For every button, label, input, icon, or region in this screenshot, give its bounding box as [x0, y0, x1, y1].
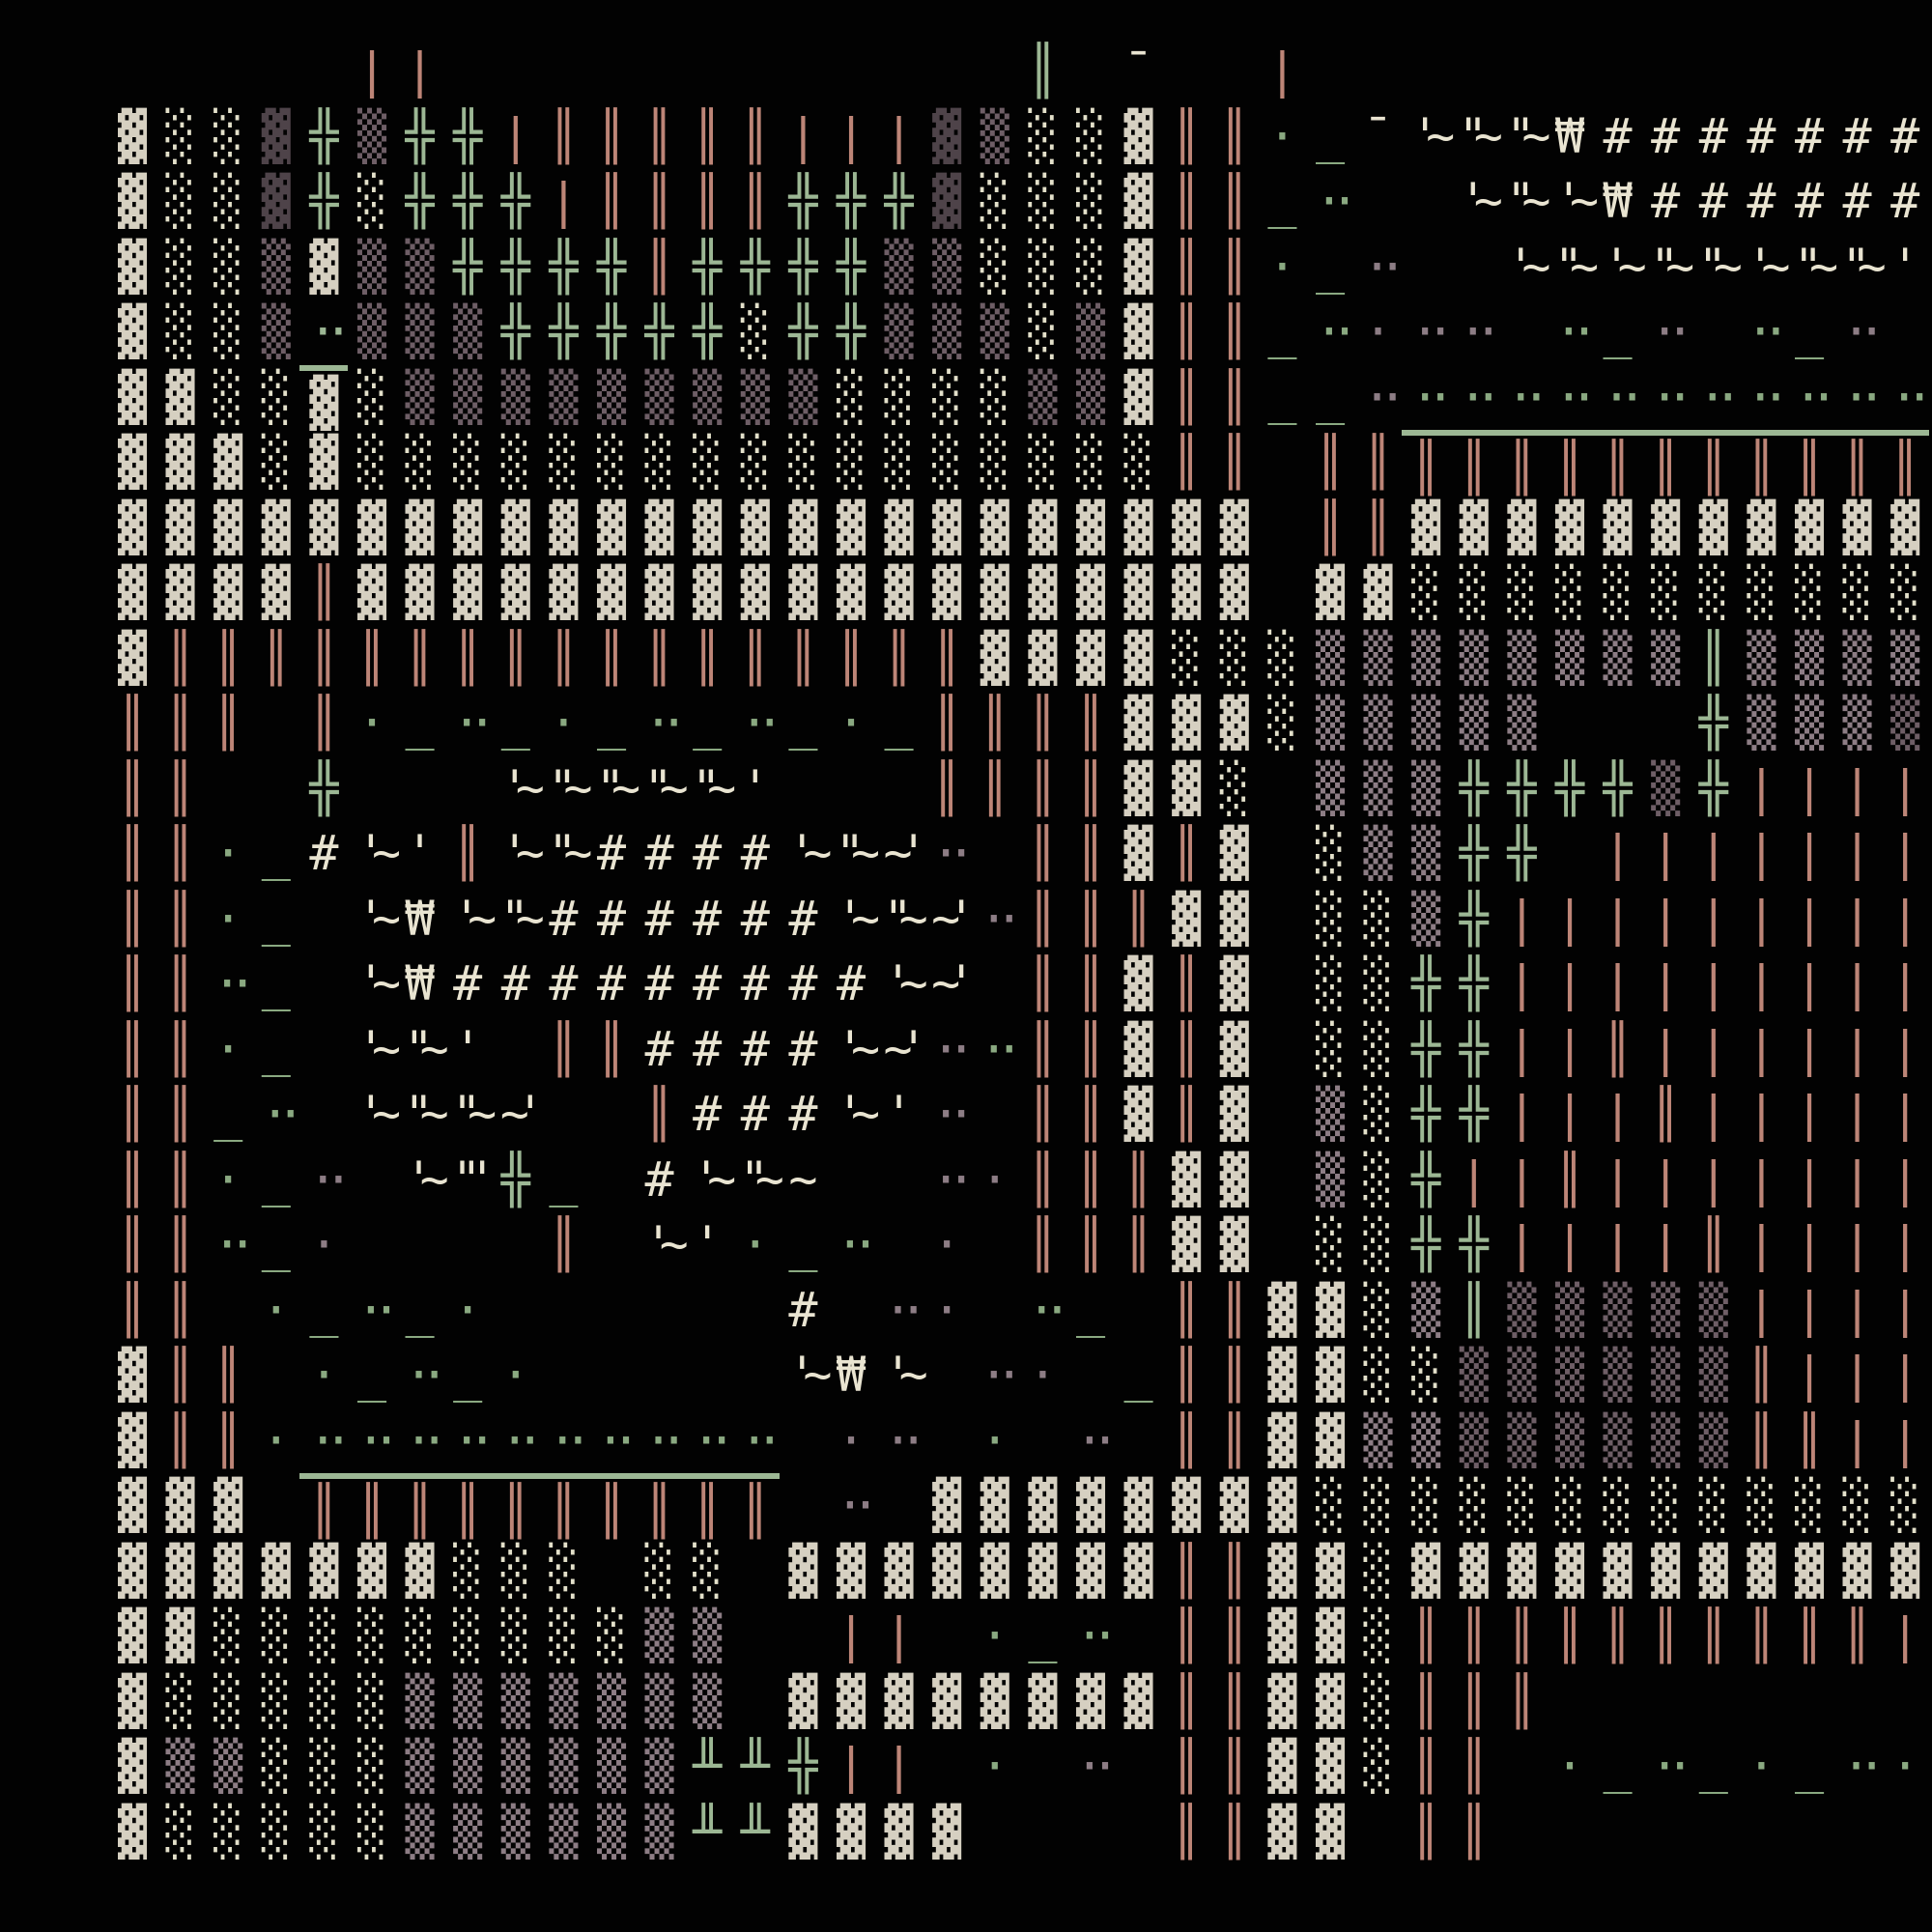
grid-cell: ▒ [1402, 821, 1450, 887]
grid-cell: ╬ [779, 1734, 827, 1800]
grid-cell: ░ [204, 104, 252, 170]
grid-cell: · [971, 1734, 1019, 1800]
grid-cell: ╬ [492, 169, 540, 235]
grid-cell: ░ [156, 235, 205, 300]
grid-cell: ║ [1162, 1082, 1210, 1148]
grid-cell: # [731, 1017, 780, 1083]
grid-cell: | [1737, 756, 1785, 822]
grid-cell: ░ [779, 430, 827, 496]
grid-cell: ▓ [1641, 1539, 1690, 1605]
grid-cell: ▒ [779, 365, 827, 431]
grid-cell: | [827, 1604, 875, 1669]
grid-cell: ▓ [875, 1669, 923, 1735]
grid-cell: | [1737, 887, 1785, 952]
grid-cell: ·· [1737, 365, 1785, 431]
grid-cell: ╬ [443, 104, 492, 170]
grid-cell: ░ [1306, 952, 1354, 1017]
grid-cell: ║ [1546, 1148, 1594, 1213]
grid-cell: ▒ [396, 365, 444, 431]
grid-cell: ░ [348, 1669, 396, 1735]
grid-cell: ║ [971, 756, 1019, 822]
grid-cell: ║ [1450, 1800, 1498, 1865]
grid-cell: ▓ [1162, 496, 1210, 561]
grid-cell: ╬ [827, 235, 875, 300]
grid-cell: ·· [875, 1408, 923, 1474]
grid-cell: ░ [1066, 235, 1115, 300]
grid-cell: ║ [299, 626, 348, 692]
grid-cell: ▒ [443, 1734, 492, 1800]
grid-cell: | [1833, 1017, 1882, 1083]
grid-cell: ▓ [683, 496, 731, 561]
grid-cell: ║ [1066, 1082, 1115, 1148]
grid-cell: ▓ [731, 496, 780, 561]
grid-cell: ·· [1497, 365, 1546, 431]
grid-cell: | [1881, 1082, 1929, 1148]
grid-cell: ║ [1066, 952, 1115, 1017]
grid-cell: ▒ [1641, 1343, 1690, 1408]
grid-cell: ▓ [1115, 496, 1163, 561]
grid-cell: ║ [299, 560, 348, 626]
grid-cell: | [1881, 1408, 1929, 1474]
grid-cell: ₩ [827, 1343, 875, 1408]
grid-cell: · [971, 1148, 1019, 1213]
grid-cell: '~ [492, 821, 540, 887]
grid-cell: | [1785, 1343, 1833, 1408]
grid-cell: ░ [1210, 626, 1259, 692]
grid-cell: ░ [1737, 560, 1785, 626]
grid-cell: ░ [827, 430, 875, 496]
grid-cell: ▒ [1690, 1343, 1738, 1408]
grid-cell: | [1833, 1082, 1882, 1148]
grid-cell: ░ [348, 1734, 396, 1800]
grid-cell: ▒ [396, 1734, 444, 1800]
grid-cell: ~' [875, 821, 923, 887]
grid-cell: ╬ [731, 235, 780, 300]
grid-cell: ▓ [204, 1539, 252, 1605]
grid-cell: | [1785, 756, 1833, 822]
grid-cell: _ [1785, 299, 1833, 365]
grid-cell: ░ [1018, 235, 1066, 300]
grid-cell: ▓ [875, 1539, 923, 1605]
grid-cell: ░ [492, 1539, 540, 1605]
grid-cell: ║ [1450, 1604, 1498, 1669]
grid-cell: # [731, 1082, 780, 1148]
grid-cell: ║ [1162, 235, 1210, 300]
grid-cell: ░ [348, 1604, 396, 1669]
grid-cell: · [1258, 104, 1306, 170]
grid-cell: ▒ [539, 1800, 587, 1865]
grid-cell: ░ [204, 235, 252, 300]
grid-cell: ▒ [1737, 691, 1785, 756]
grid-cell: ▓ [108, 1539, 156, 1605]
grid-cell: ¯ [1354, 104, 1403, 170]
grid-cell: _ [1690, 1734, 1738, 1800]
grid-cell: ▓ [875, 496, 923, 561]
grid-cell: ▓ [971, 1473, 1019, 1539]
grid-cell: ▓ [108, 104, 156, 170]
grid-cell: ·· [587, 1408, 636, 1474]
grid-cell: ║ [1546, 1604, 1594, 1669]
grid-cell: ╬ [1402, 1017, 1450, 1083]
grid-cell: _ [1306, 104, 1354, 170]
grid-cell: ║ [1450, 1734, 1498, 1800]
grid-cell: ║ [923, 756, 971, 822]
grid-cell: ▓ [1258, 1473, 1306, 1539]
grid-cell: ▒ [1881, 691, 1929, 756]
grid-cell: ▓ [1306, 1604, 1354, 1669]
grid-cell: ░ [348, 430, 396, 496]
grid-cell: _ [252, 821, 300, 887]
grid-cell: ║ [731, 1473, 780, 1545]
grid-cell: | [1641, 952, 1690, 1017]
grid-cell: "~ [396, 1017, 444, 1083]
grid-cell: ·· [1354, 235, 1403, 300]
grid-cell: ~' [923, 887, 971, 952]
grid-cell: ░ [396, 430, 444, 496]
grid-cell: ║ [443, 626, 492, 692]
grid-cell: # [779, 1082, 827, 1148]
grid-cell: ║ [1210, 365, 1259, 431]
grid-cell: ▒ [396, 1669, 444, 1735]
grid-cell: ▒ [348, 104, 396, 170]
grid-cell: ▓ [1115, 1082, 1163, 1148]
grid-cell: "~ [492, 887, 540, 952]
grid-cell: # [779, 1278, 827, 1344]
grid-cell: ░ [252, 1669, 300, 1735]
grid-cell: ▓ [1162, 1473, 1210, 1539]
grid-cell: | [1497, 1148, 1546, 1213]
grid-cell: ▒ [971, 104, 1019, 170]
grid-cell: ▓ [1450, 496, 1498, 561]
grid-cell: ▓ [1210, 952, 1259, 1017]
grid-cell: ║ [923, 626, 971, 692]
grid-cell: ║ [156, 1017, 205, 1083]
grid-cell: ║ [1594, 430, 1642, 501]
grid-cell: ░ [443, 1539, 492, 1605]
grid-cell: ▒ [636, 1734, 684, 1800]
grid-cell: | [1497, 887, 1546, 952]
grid-cell: ║ [539, 626, 587, 692]
grid-cell: ░ [1354, 1278, 1403, 1344]
grid-cell: ░ [1018, 169, 1066, 235]
grid-cell: # [731, 821, 780, 887]
grid-cell: ║ [1641, 430, 1690, 501]
grid-cell: ║ [108, 691, 156, 756]
grid-cell: ╬ [539, 299, 587, 365]
grid-cell: · [492, 1343, 540, 1408]
grid-cell: ~' [875, 1017, 923, 1083]
grid-cell: ║ [1785, 1604, 1833, 1669]
grid-cell: ╬ [1690, 691, 1738, 756]
grid-cell: ' [731, 756, 780, 822]
grid-cell: | [1497, 1212, 1546, 1278]
grid-cell: ▒ [1737, 626, 1785, 692]
grid-cell: ▓ [971, 1539, 1019, 1605]
grid-cell: | [1690, 887, 1738, 952]
grid-cell: ▓ [156, 1604, 205, 1669]
grid-cell: ░ [252, 1604, 300, 1669]
grid-cell: ▓ [1833, 1539, 1882, 1605]
grid-cell: ▓ [1306, 1539, 1354, 1605]
grid-cell: ║ [539, 1212, 587, 1278]
grid-cell: ║ [108, 887, 156, 952]
grid-cell: ╬ [683, 299, 731, 365]
grid-cell: '~ [875, 1343, 923, 1408]
grid-cell: | [1258, 39, 1306, 104]
grid-cell: ░ [299, 1800, 348, 1865]
grid-cell: ·· [1641, 365, 1690, 431]
grid-cell: ░ [636, 1539, 684, 1605]
grid-cell: ▓ [1162, 1148, 1210, 1213]
grid-cell: # [1690, 169, 1738, 235]
grid-cell: '~ [1497, 235, 1546, 300]
grid-cell: ▒ [1354, 756, 1403, 822]
grid-cell: ║ [875, 626, 923, 692]
grid-cell: ▓ [443, 496, 492, 561]
grid-cell: ░ [348, 365, 396, 431]
grid-cell: ▓ [204, 560, 252, 626]
grid-cell: ▓ [923, 560, 971, 626]
grid-cell: · [971, 1604, 1019, 1669]
grid-cell: ▓ [156, 496, 205, 561]
grid-cell: # [683, 1082, 731, 1148]
grid-cell: ·· [827, 1212, 875, 1278]
grid-cell: _ [252, 952, 300, 1017]
grid-cell: ▓ [108, 1800, 156, 1865]
grid-cell: | [1737, 1148, 1785, 1213]
grid-cell: ║ [204, 691, 252, 756]
grid-cell: ▒ [443, 365, 492, 431]
grid-cell: ▓ [1210, 496, 1259, 561]
grid-cell: ▓ [1115, 1473, 1163, 1539]
grid-cell: ░ [1306, 821, 1354, 887]
grid-cell: ║ [636, 1082, 684, 1148]
grid-cell: ░ [252, 365, 300, 431]
grid-cell: ░ [1450, 560, 1498, 626]
grid-cell: ▓ [299, 430, 348, 496]
grid-cell: _ [875, 691, 923, 756]
grid-cell: ▒ [1594, 1343, 1642, 1408]
grid-cell: ·· [731, 1408, 780, 1474]
grid-cell: _ [443, 1343, 492, 1408]
grid-cell: ╬ [492, 299, 540, 365]
grid-cell: ₩ [1546, 104, 1594, 170]
grid-cell: ║ [108, 1017, 156, 1083]
grid-cell: ║ [636, 1473, 684, 1545]
grid-cell: ║ [108, 756, 156, 822]
grid-cell: ░ [1354, 1343, 1403, 1408]
grid-cell: | [875, 1734, 923, 1800]
grid-cell: ║ [1833, 1604, 1882, 1669]
grid-cell: ·· [1354, 365, 1403, 431]
grid-cell: ▓ [299, 1539, 348, 1605]
grid-cell: _ [539, 1148, 587, 1213]
grid-cell: # [587, 821, 636, 887]
grid-cell: ║ [923, 691, 971, 756]
grid-cell: ▓ [108, 299, 156, 365]
grid-cell: ░ [1018, 104, 1066, 170]
grid-cell: ▓ [779, 1539, 827, 1605]
grid-cell: _ [204, 1082, 252, 1148]
grid-cell: ░ [1354, 1734, 1403, 1800]
grid-cell: ▓ [587, 560, 636, 626]
grid-cell: ░ [971, 365, 1019, 431]
grid-cell: "~ [1690, 235, 1738, 300]
grid-cell: ║ [156, 1408, 205, 1474]
grid-cell: _ [1306, 235, 1354, 300]
grid-cell: '~ [348, 1082, 396, 1148]
grid-cell: ▓ [108, 560, 156, 626]
grid-cell: | [1737, 821, 1785, 887]
grid-cell: ·· [1690, 365, 1738, 431]
grid-cell: ▓ [1737, 1539, 1785, 1605]
grid-cell: ║ [108, 1082, 156, 1148]
grid-cell: ░ [204, 1800, 252, 1865]
grid-cell: ▓ [1306, 1800, 1354, 1865]
grid-cell: ▒ [1497, 1408, 1546, 1474]
grid-cell: "~ [539, 756, 587, 822]
grid-cell: ╬ [299, 169, 348, 235]
grid-cell: ▓ [1402, 496, 1450, 561]
grid-cell: ¯ [1115, 39, 1163, 104]
grid-cell: _ [252, 1148, 300, 1213]
grid-cell: ║ [1354, 496, 1403, 561]
grid-cell: | [1881, 1278, 1929, 1344]
grid-cell: ▓ [1066, 1473, 1115, 1539]
grid-cell: ▓ [731, 560, 780, 626]
grid-cell: '~ [827, 1017, 875, 1083]
grid-cell: | [1497, 952, 1546, 1017]
grid-cell: ▒ [587, 1734, 636, 1800]
grid-cell: ▒ [1641, 756, 1690, 822]
grid-cell: _ [683, 691, 731, 756]
grid-cell: ║ [683, 104, 731, 170]
grid-cell: ░ [252, 1734, 300, 1800]
grid-cell: ▓ [1210, 1017, 1259, 1083]
grid-cell: ║ [492, 626, 540, 692]
grid-cell: ╬ [299, 756, 348, 822]
grid-cell: ▓ [1066, 560, 1115, 626]
grid-cell: "~ [827, 821, 875, 887]
grid-cell: ▒ [492, 365, 540, 431]
grid-cell: ░ [204, 1604, 252, 1669]
grid-cell: _ [1258, 299, 1306, 365]
grid-cell: ▓ [1018, 626, 1066, 692]
grid-cell: ▓ [348, 496, 396, 561]
grid-cell: ▓ [1018, 1473, 1066, 1539]
grid-cell: ▓ [1018, 560, 1066, 626]
grid-cell: ▓ [1210, 1212, 1259, 1278]
grid-cell: ║ [156, 691, 205, 756]
grid-cell: ║ [1402, 1734, 1450, 1800]
grid-cell: ▒ [252, 299, 300, 365]
grid-cell: ║ [636, 169, 684, 235]
grid-cell: ▓ [1306, 560, 1354, 626]
grid-cell: | [1881, 1148, 1929, 1213]
grid-cell: ║ [1162, 952, 1210, 1017]
grid-cell: ║ [1690, 1212, 1738, 1278]
grid-cell: ·· [636, 691, 684, 756]
grid-cell: ▒ [923, 299, 971, 365]
grid-cell: # [1641, 169, 1690, 235]
grid-cell: ║ [1402, 1669, 1450, 1735]
grid-cell: ║ [683, 626, 731, 692]
grid-cell: ░ [971, 169, 1019, 235]
grid-cell: "~ [683, 756, 731, 822]
grid-cell: # [492, 952, 540, 1017]
grid-cell: | [1881, 1604, 1929, 1669]
grid-cell: ░ [1881, 1473, 1929, 1539]
grid-cell: ·· [1785, 365, 1833, 431]
grid-cell: ▓ [1546, 496, 1594, 561]
grid-cell: ░ [348, 1800, 396, 1865]
grid-cell: ║ [443, 1473, 492, 1545]
grid-cell: ╬ [1402, 1082, 1450, 1148]
grid-cell: ₩ [396, 952, 444, 1017]
grid-cell: ░ [1354, 887, 1403, 952]
grid-cell: ║ [1594, 1604, 1642, 1669]
grid-cell: ·· [1066, 1734, 1115, 1800]
grid-cell: ▓ [108, 169, 156, 235]
grid-cell: ▓ [1115, 821, 1163, 887]
grid-cell: '~ [636, 1212, 684, 1278]
grid-cell: | [1833, 1343, 1882, 1408]
grid-cell: ╬ [779, 169, 827, 235]
grid-cell: ▓ [1881, 1539, 1929, 1605]
grid-cell: | [1497, 1017, 1546, 1083]
grid-cell: # [731, 887, 780, 952]
grid-cell: ║ [1018, 821, 1066, 887]
grid-cell: ▓ [539, 560, 587, 626]
grid-cell: ║ [156, 756, 205, 822]
grid-cell: | [827, 104, 875, 170]
grid-cell: ▒ [587, 1669, 636, 1735]
grid-cell: ║ [204, 1343, 252, 1408]
grid-cell: | [875, 104, 923, 170]
grid-cell: ▓ [108, 1604, 156, 1669]
grid-cell: ║ [1018, 1082, 1066, 1148]
grid-cell: ║ [1497, 1604, 1546, 1669]
grid-cell: ║ [1306, 496, 1354, 561]
grid-cell: | [1594, 1212, 1642, 1278]
grid-cell: ░ [156, 299, 205, 365]
grid-cell: | [1737, 1278, 1785, 1344]
grid-cell: ▒ [539, 1669, 587, 1735]
grid-cell: ▓ [1497, 1539, 1546, 1605]
grid-cell: ▒ [1641, 1408, 1690, 1474]
grid-cell: ║ [1162, 1604, 1210, 1669]
grid-cell: ▓ [1115, 952, 1163, 1017]
grid-cell: ₩ [1594, 169, 1642, 235]
grid-cell: ▒ [587, 1800, 636, 1865]
grid-cell: | [1546, 1017, 1594, 1083]
grid-cell: ▓ [1354, 560, 1403, 626]
grid-cell: # [779, 887, 827, 952]
grid-cell: | [1833, 952, 1882, 1017]
grid-cell: ▓ [252, 1539, 300, 1605]
grid-cell: ╬ [1497, 756, 1546, 822]
grid-cell: ·· [1881, 365, 1929, 431]
grid-cell: ╬ [443, 235, 492, 300]
grid-cell: ║ [1210, 1800, 1259, 1865]
grid-cell: ▓ [204, 1473, 252, 1539]
grid-cell: ▓ [396, 1539, 444, 1605]
grid-cell: ║ [1210, 299, 1259, 365]
grid-cell: ▓ [779, 1800, 827, 1865]
grid-cell: ·· [1402, 299, 1450, 365]
grid-cell: # [299, 821, 348, 887]
grid-cell: ▒ [923, 235, 971, 300]
